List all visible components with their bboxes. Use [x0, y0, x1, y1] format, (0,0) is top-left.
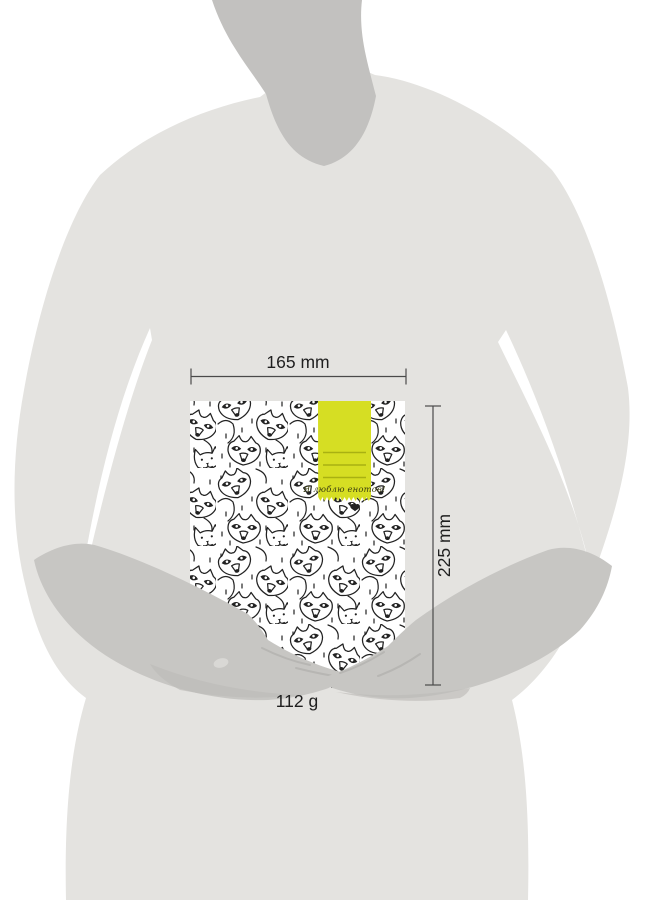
- product-size-diagram: Я люблю енотов!: [0, 0, 647, 900]
- cover-label-text: Я люблю енотов!: [302, 484, 385, 494]
- size-diagram-canvas: Я люблю енотов!: [0, 0, 647, 900]
- weight-label: 112 g: [276, 691, 319, 711]
- height-dimension-label: 225 mm: [434, 514, 454, 577]
- width-dimension-label: 165 mm: [266, 352, 329, 372]
